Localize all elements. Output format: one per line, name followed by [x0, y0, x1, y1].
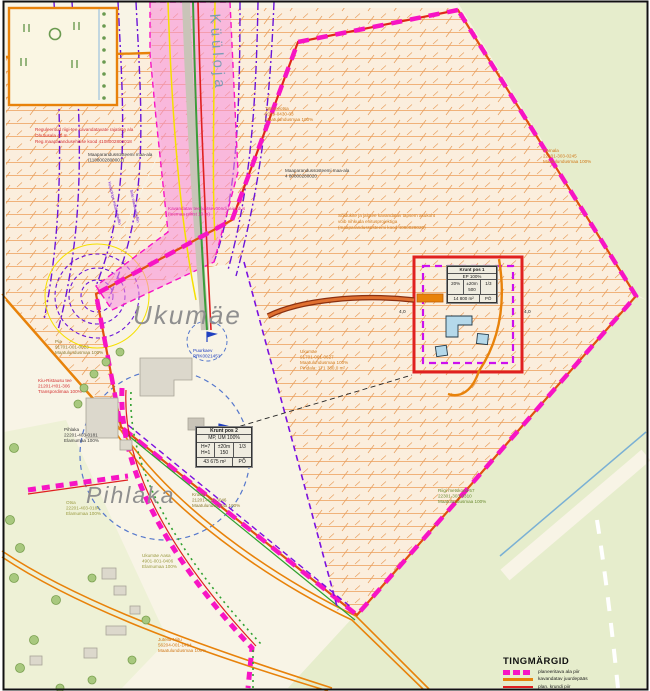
map-canvas: Küüloja Ukumäe Pihlaka Reguleeritud riig… — [0, 0, 650, 691]
table-cell: H=7 H=1 — [197, 443, 214, 458]
building-rights-table-pos1: Krunt pos 1 EP 100% 20% ±20m 500 1/3 14 … — [447, 266, 497, 303]
legend-swatch-planned-access — [503, 678, 533, 681]
legend-item-plot-boundary: plan. krundi piir — [503, 685, 648, 690]
legend-swatch-plot-boundary — [503, 686, 533, 689]
top-left-parcel-group — [9, 8, 117, 105]
table-code: PÕ — [232, 458, 251, 466]
legend-item-access: kavandatav juurdepääs — [503, 677, 648, 682]
parcel-label-ukumae-aasa: Ukumäe Aasa 4901-001-0406 Elamumaa 100% — [142, 553, 177, 569]
building-rights-table-pos2: Krunt pos 2 MP, ÜM 100% H=7 H=1 ±20m 150… — [196, 427, 252, 467]
table-land-use: MP, ÜM 100% — [197, 434, 251, 441]
table-cell: 1/3 — [480, 280, 496, 293]
place-name-ukumae: Ukumäe — [133, 300, 242, 330]
table-cell: 1/3 — [233, 443, 251, 458]
table-area: 43 675 m² — [197, 458, 232, 466]
detail-plan-map: Küüloja Ukumäe Pihlaka Reguleeritud riig… — [0, 0, 650, 691]
legend-title: TINGMÄRGID — [503, 656, 648, 667]
legend-item-planned-area: planeeritava ala piir — [503, 670, 648, 675]
parcel-orange-border — [9, 8, 117, 105]
place-name-pihlaka: Pihlaka — [86, 482, 175, 508]
table-area: 14 800 m² — [448, 295, 479, 303]
table-cell: ±20m 150 — [214, 443, 232, 458]
table-cell: 20% — [448, 280, 463, 293]
dimension-label-right: 4,0 — [524, 309, 531, 315]
dimension-label-left: 4,0 — [399, 309, 406, 315]
legend-swatch-planned-area-boundary — [503, 670, 533, 675]
access-bar — [417, 294, 443, 302]
table-code: PÕ — [479, 295, 496, 303]
table-land-use: EP 100% — [448, 273, 496, 280]
legend: TINGMÄRGID planeeritava ala piir kavanda… — [503, 656, 648, 691]
table-cell: ±20m 500 — [463, 280, 479, 293]
